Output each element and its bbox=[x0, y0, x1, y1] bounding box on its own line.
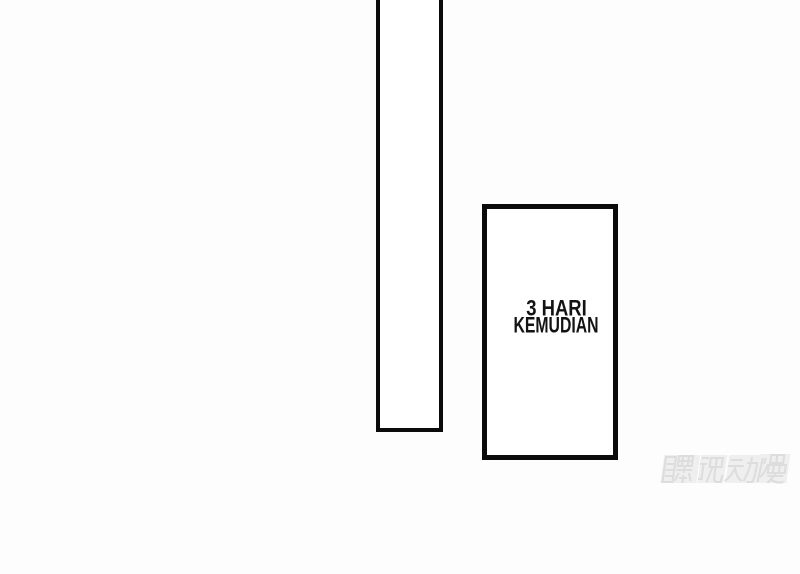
svg-text:KEMUDIAN: KEMUDIAN bbox=[514, 313, 599, 338]
